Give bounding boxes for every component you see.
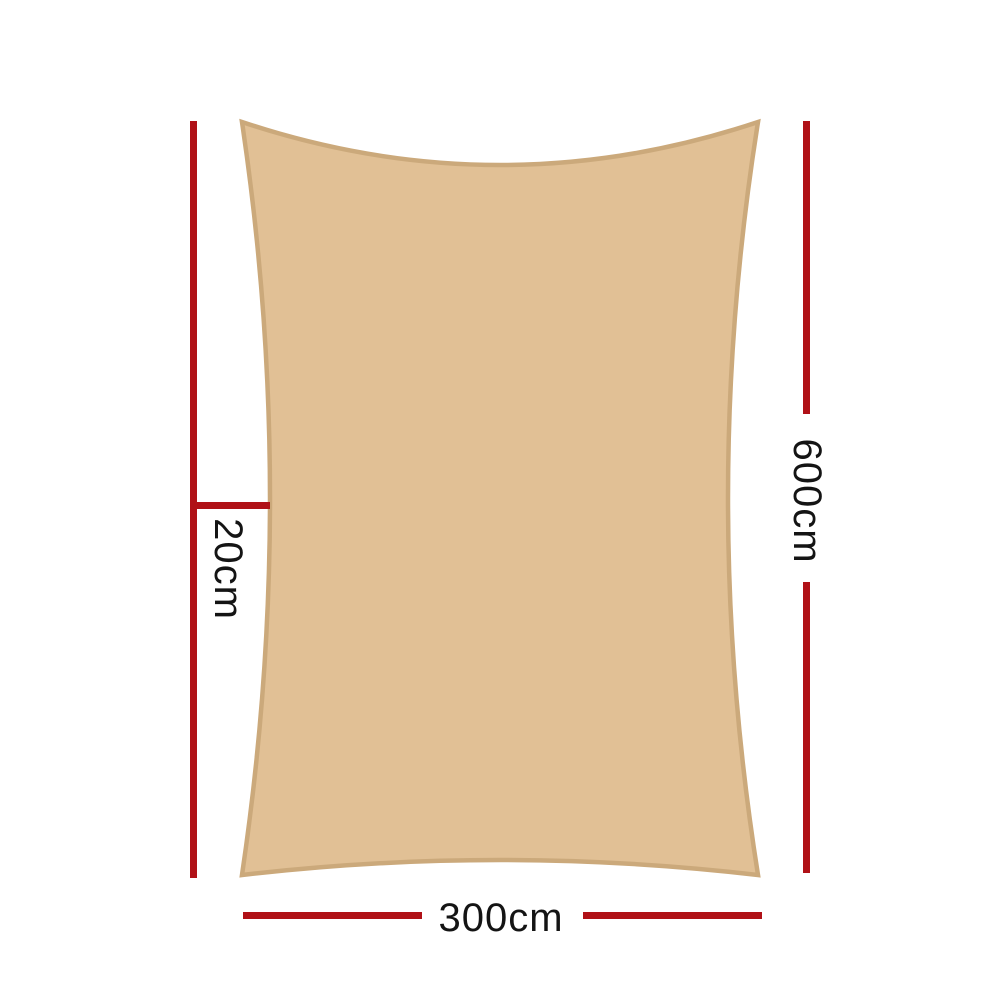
offset-tick-line [190,502,270,509]
height-dimension-line-bottom [803,582,810,873]
shade-sail-dimension-diagram: 20cm 600cm 300cm [0,0,1000,1000]
width-dimension-line-left [243,912,422,919]
width-dimension-line-right [583,912,762,919]
width-dimension-label: 300cm [438,898,563,938]
height-reference-line [190,121,197,878]
height-dimension-line-top [803,121,810,414]
height-dimension-label: 600cm [787,438,827,563]
shade-sail-shape [242,122,758,875]
shade-sail-image [0,0,1000,1000]
offset-dimension-label: 20cm [208,518,248,620]
